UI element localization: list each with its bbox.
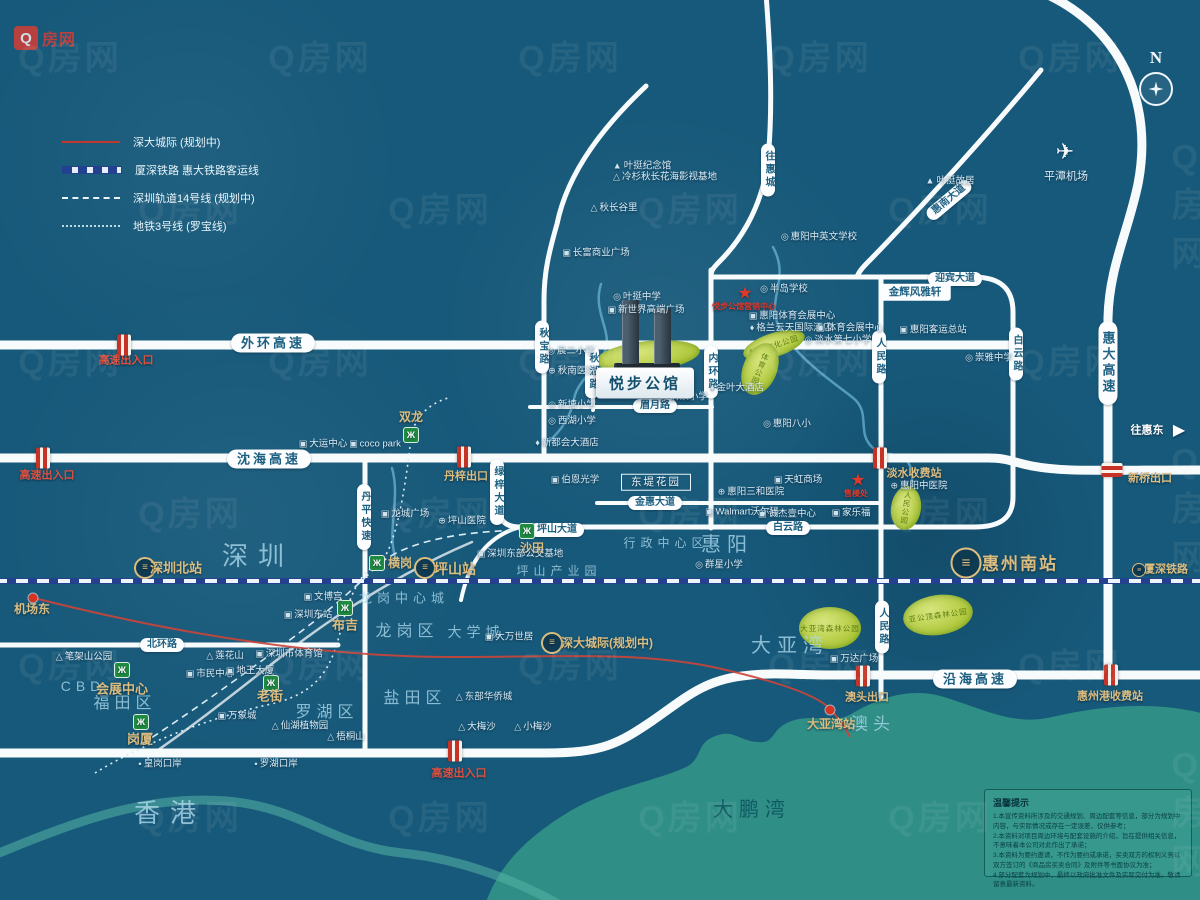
poi-qiuchanggu-text: 秋长谷里 (599, 203, 637, 213)
region-futian: 福田区 (93, 696, 156, 712)
building-icon (255, 650, 264, 659)
hospital-icon (890, 482, 898, 491)
region-admin-center: 行政中心区 (623, 537, 708, 549)
region-shenzhen-text: 深圳 (222, 543, 294, 569)
poi-yeting-residence-text: 叶挺故居 (936, 176, 974, 186)
shenda-intercity-label: 深大城际(规划中) (561, 637, 653, 649)
dot-icon (138, 761, 142, 767)
exit-xinqiao-text: 新桥出口 (1128, 474, 1172, 485)
legend-label: 深圳轨道14号线 (规划中) (133, 190, 255, 206)
legend-item-xiashen-railway: 厦深铁路 惠大铁路客运线 (62, 156, 259, 184)
building-icon (226, 667, 235, 676)
station-buji-text: 布吉 (332, 619, 358, 632)
dir-to-huidong: 往惠东 (1131, 426, 1164, 437)
poi-luohu-port-text: 罗湖口岸 (260, 759, 298, 769)
station-dayawan: 大亚湾站 (807, 718, 855, 730)
building-icon (349, 440, 358, 449)
badge-pingshan-ave-text: 坪山大道 (537, 525, 577, 535)
scenic-icon (56, 653, 63, 662)
school-icon (760, 285, 768, 294)
badge-huida-expwy: 惠大高速 (1099, 321, 1118, 405)
exit-marker-waihuan (117, 335, 131, 356)
badge-renmin-rd-n-text: 人民路 (874, 338, 884, 377)
poi-shenzhendong-station: 深圳东站 (284, 610, 333, 620)
region-luohu: 罗湖区 (295, 705, 358, 721)
poi-wenbogong-text: 文博宫 (314, 592, 343, 602)
region-pingshan-industrial: 坪山产业园 (516, 565, 601, 577)
badge-huinan-ave-text: 惠南大道 (930, 183, 967, 216)
poi-wanda-plaza-text: 万达广场 (840, 654, 878, 664)
region-aotou-text: 澳头 (851, 716, 895, 733)
region-dapengwan-text: 大鹏湾 (713, 800, 791, 820)
poi-tianhong-mall-text: 天虹商场 (784, 475, 822, 485)
region-longgang-text: 龙岗区 (375, 624, 438, 640)
station-gangxia: 岗厦 (127, 733, 153, 746)
poi-chongya-middle: 崇雅中学 (965, 353, 1013, 363)
expwy-access-2: 高速出入口 (20, 471, 75, 482)
poi-boen-optical-text: 伯恩光学 (561, 475, 599, 485)
poi-bandao-school-text: 半岛学校 (770, 284, 808, 294)
poi-huanggang-port: 皇岗口岸 (138, 759, 182, 769)
badge-pingshan-ave: 坪山大道 (530, 523, 584, 537)
poi-east-oct-text: 东部华侨城 (465, 692, 513, 702)
hospital-icon (548, 367, 556, 376)
expwy-access-3-text: 高速出入口 (432, 769, 487, 780)
poi-bijiashan-park: 笔架山公园 (56, 652, 112, 662)
sales-star-2-caption-text: 售楼处 (844, 490, 868, 498)
school-icon (695, 561, 703, 570)
poi-dawanshiju-text: 大万世居 (495, 632, 533, 642)
poi-sz-gymnasium: 深圳市体育馆 (255, 649, 323, 659)
property-label-box: 悦步公馆 (596, 368, 694, 399)
exit-marker-coastal (448, 741, 462, 762)
station-huizhounan-text: 惠州南站 (982, 556, 1058, 573)
poi-east-oct: 东部华侨城 (456, 692, 512, 702)
poi-huanggang-port-text: 皇岗口岸 (144, 759, 182, 769)
station-dayawan-text: 大亚湾站 (807, 718, 855, 730)
station-laojie-text: 老街 (257, 690, 283, 703)
station-gangxia-text: 岗厦 (127, 733, 153, 746)
compass: N (1136, 48, 1176, 106)
building-icon (607, 306, 616, 315)
poi-danshui-7-primary: 淡水第七小学 (805, 335, 872, 345)
poi-xiaomeisha-text: 小梅沙 (523, 722, 552, 732)
disclaimer-line: 2.本资料对项目周边环境与配套设施的介绍，旨在提供相关信息，不意味着本公司对此作… (993, 832, 1183, 852)
label-dongdi-garden-text: 东堤花园 (631, 477, 681, 488)
disclaimer-box: 温馨提示 1.本宣传资料所涉及的交通规划、周边配套等信息，部分为规划中内容，与实… (984, 789, 1192, 877)
poi-xihu-primary-text: 西湖小学 (558, 416, 596, 426)
badge-renmin-rd-s: 人民路 (875, 601, 889, 654)
poi-new-world-plaza: 新世界高端广场 (607, 305, 684, 315)
poi-dameisha-text: 大梅沙 (467, 722, 496, 732)
badge-yanhai-expwy: 沿海高速 (933, 670, 1017, 689)
badge-renmin-rd-s-text: 人民路 (877, 608, 887, 647)
poi-zhongyingwen-school-text: 惠阳中英文学校 (791, 232, 858, 242)
poi-yeting-residence: 叶挺故居 (926, 176, 975, 186)
huizhan-metro-icon (114, 662, 130, 678)
poi-mixc-mall-text: 万象城 (228, 711, 257, 721)
building-icon (774, 476, 783, 485)
badge-meiyue-rd-text: 眉月路 (640, 401, 670, 411)
poi-diwang-tower: 地王大厦 (226, 666, 275, 676)
map-legend: 深大城际 (规划中) 厦深铁路 惠大铁路客运线 深圳轨道14号线 (规划中) 地… (62, 128, 259, 240)
region-futian-text: 福田区 (93, 696, 156, 712)
poi-tianhong-mall: 天虹商场 (774, 475, 823, 485)
station-laojie: 老街 (257, 690, 283, 703)
badge-waihuan-expwy: 外环高速 (231, 334, 315, 353)
building-icon (381, 510, 390, 519)
legend-line-intercity (62, 141, 120, 143)
region-dapengwan: 大鹏湾 (713, 800, 791, 820)
poi-danshui-7-primary-text: 淡水第七小学 (814, 335, 871, 345)
scenic-icon (514, 723, 521, 732)
poi-jialefu: 家乐福 (831, 508, 870, 518)
building-icon (299, 440, 308, 449)
poi-dawanshiju: 大万世居 (485, 632, 534, 642)
badge-beihuan-rd: 北环路 (140, 638, 184, 652)
exit-marker-shenhai-w (36, 448, 50, 469)
poi-changfu-plaza-text: 长富商业广场 (573, 248, 630, 258)
poi-longcheng-plaza-text: 龙城广场 (391, 509, 429, 519)
legend-item-metro14: 深圳轨道14号线 (规划中) (62, 184, 259, 212)
station-henggang-text: 横岗 (388, 557, 412, 569)
east-arrow-icon (1173, 423, 1185, 439)
station-pingshan-text: 坪山站 (434, 562, 476, 576)
scenic-icon (613, 173, 620, 182)
poi-huiyang-bus-terminal-text: 惠阳客运总站 (910, 325, 967, 335)
poi-lianhuashan-text: 莲花山 (215, 651, 244, 661)
station-jichangdong: 机场东 (14, 603, 50, 615)
dayawan-dot (826, 706, 835, 715)
poi-pingshan-hospital-text: 坪山医院 (448, 516, 486, 526)
scenic-icon (456, 693, 463, 702)
xiashen-railway-label: 厦深铁路 (1144, 565, 1188, 576)
poi-pingshan-hospital: 坪山医院 (438, 516, 486, 526)
poi-changfu-plaza: 长富商业广场 (562, 248, 630, 258)
label-jinhui-fengyaxuan: 金辉风雅轩 (880, 284, 951, 301)
building-icon (899, 326, 908, 335)
toll-danshui: 淡水收费站 (887, 469, 942, 480)
dot-icon (254, 761, 258, 767)
scenic-icon (206, 652, 213, 661)
poi-tiyu-expo-center: 体育会展中心 (816, 323, 884, 333)
toll-marker-huizhougang (1104, 665, 1118, 686)
poi-huiyang-8-primary: 惠阳八小 (763, 419, 811, 429)
region-longgang-center-text: 龙岗中心城 (359, 592, 449, 605)
legend-label: 厦深铁路 惠大铁路客运线 (135, 162, 259, 178)
xiashen-railway-label-text: 厦深铁路 (1144, 565, 1188, 576)
pingtan-airport-icon (1056, 141, 1074, 163)
hotel-icon (535, 439, 540, 448)
poi-qiuchanggu: 秋长谷里 (591, 203, 638, 213)
poi-chener-primary-text: 晨二小学 (557, 346, 595, 356)
henggang-metro-icon (369, 555, 385, 571)
region-dayawan-text: 大亚湾 (751, 636, 829, 656)
memorial-icon (926, 177, 935, 186)
badge-renmin-rd-n: 人民路 (872, 331, 886, 384)
badge-danping-expwy: 丹平快速 (357, 484, 371, 550)
region-aotou: 澳头 (851, 716, 895, 733)
disclaimer-line: 4.部分配套为规划中，最终以政府批准文件及实际交付为准。敬请留意最新资料。 (993, 871, 1183, 891)
poi-longcheng-plaza: 龙城广场 (381, 509, 430, 519)
badge-yingbin-ave-text: 迎宾大道 (935, 274, 975, 284)
expwy-access-3: 高速出入口 (432, 769, 487, 780)
scenic-icon (272, 722, 279, 731)
badge-lvzi-ave: 绿梓大道 (490, 459, 504, 525)
hospital-icon (718, 488, 726, 497)
poi-xindouhui-hotel: 新都会大酒店 (535, 438, 599, 448)
poi-luohu-port: 罗湖口岸 (254, 759, 298, 769)
site-logo-watermark: Q 房网 (14, 26, 76, 50)
label-jinhui-fengyaxuan-text: 金辉风雅轩 (889, 287, 942, 298)
station-pingshan: 坪山站 (434, 562, 476, 576)
poi-east-bus-base-text: 深圳东部公交基地 (487, 549, 563, 559)
badge-danping-expwy-text: 丹平快速 (359, 491, 369, 543)
exit-aotou: 澳头出口 (845, 693, 889, 704)
location-map: 秋长文化公园体育公园人民公园大亚湾森林公园亚公顶森林公园 深圳香港惠阳大亚湾澳头… (0, 0, 1200, 900)
region-yantian: 盐田区 (383, 691, 446, 707)
poi-film-base-text: 冷杉秋长花海影视基地 (622, 172, 717, 182)
memorial-icon (613, 162, 622, 171)
legend-line-metro14 (62, 197, 120, 199)
school-icon (965, 354, 973, 363)
poi-wutongshan: 梧桐山 (327, 732, 364, 742)
poi-tiyu-expo-center-text: 体育会展中心 (827, 323, 884, 333)
shatian-metro-icon (519, 523, 535, 539)
poi-chongya-middle-text: 崇雅中学 (975, 353, 1013, 363)
building-icon (551, 476, 560, 485)
badge-yanhai-expwy-text: 沿海高速 (943, 673, 1007, 686)
building-icon (758, 510, 767, 519)
shuanglong-metro-icon (403, 427, 419, 443)
sales-star-2 (850, 472, 865, 489)
scenic-icon (327, 733, 334, 742)
pingshan-train-icon (414, 557, 436, 579)
legend-item-metro3: 地铁3号线 (罗宝线) (62, 212, 259, 240)
poi-xianhu-garden: 仙湖植物园 (272, 721, 328, 731)
exit-marker-xinqiao (1102, 463, 1123, 477)
huizhounan-train-icon (951, 548, 982, 579)
poi-qiunan-hospital-text: 秋南医院 (558, 366, 596, 376)
region-longgang: 龙岗区 (375, 624, 438, 640)
sales-star-2-caption: 售楼处 (844, 490, 868, 498)
sales-star-1 (737, 285, 752, 302)
expwy-access-1-text: 高速出入口 (99, 356, 154, 367)
building-icon (284, 611, 293, 620)
badge-jinhui-ave: 金惠大道 (628, 496, 682, 510)
poi-sanhe-hospital-text: 惠阳三和医院 (727, 487, 784, 497)
site-logo-text: 房网 (42, 26, 76, 50)
toll-marker-danshui (873, 448, 887, 469)
poi-jinye-hotel-text: 金叶大酒店 (717, 383, 765, 393)
site-logo-q-icon: Q (14, 26, 38, 50)
legend-label: 地铁3号线 (罗宝线) (133, 218, 227, 234)
toll-huizhougang: 惠州港收费站 (1077, 692, 1143, 703)
building-icon (217, 712, 226, 721)
badge-qiubao-rd-text: 秋宝路 (537, 328, 547, 367)
badge-beihuan-rd-text: 北环路 (147, 640, 177, 650)
exit-marker-aotou (856, 666, 870, 687)
poi-huiyang-expo-center-text: 惠阳体育会展中心 (759, 311, 835, 321)
region-hongkong-text: 香港 (134, 800, 206, 826)
building-icon (477, 550, 486, 559)
exit-aotou-text: 澳头出口 (845, 693, 889, 704)
compass-dial-icon (1139, 72, 1173, 106)
hotel-icon (710, 384, 715, 393)
poi-film-base: 冷杉秋长花海影视基地 (613, 172, 717, 182)
badge-baiyun-rd-h: 白云路 (766, 521, 810, 535)
poi-xihu-primary: 西湖小学 (548, 416, 596, 426)
poi-zhongyingwen-school: 惠阳中英文学校 (781, 232, 857, 242)
school-icon (548, 417, 556, 426)
school-icon (613, 293, 621, 302)
dir-to-huicheng-text: 往惠城 (763, 151, 773, 190)
badge-shenhai-expwy-text: 沈海高速 (237, 453, 301, 466)
poi-wenbogong: 文博宫 (303, 592, 342, 602)
school-icon (763, 420, 771, 429)
expwy-access-1: 高速出入口 (99, 356, 154, 367)
school-icon (548, 401, 556, 410)
poi-pingtan-airport: 平潭机场 (1044, 172, 1088, 183)
expwy-access-2-text: 高速出入口 (20, 471, 75, 482)
poi-dameisha: 大梅沙 (458, 722, 495, 732)
poi-shenzhendong-station-text: 深圳东站 (294, 610, 332, 620)
legend-item-shenda-intercity: 深大城际 (规划中) (62, 128, 259, 156)
station-henggang: 横岗 (388, 557, 412, 569)
exit-xinqiao: 新桥出口 (1128, 474, 1172, 485)
region-admin-center-text: 行政中心区 (623, 537, 708, 549)
poi-dayun-center-text: 大运中心 (309, 439, 347, 449)
exit-marker-danzi (457, 447, 471, 468)
poi-xindouhui-hotel-text: 新都会大酒店 (542, 438, 599, 448)
poi-chengjie-center: 诚杰壹中心 (758, 509, 816, 519)
poi-xintang-primary-text: 新塘小学 (558, 400, 596, 410)
region-longgang-center: 龙岗中心城 (359, 592, 449, 605)
compass-star-icon (1149, 82, 1164, 97)
poi-cocopark-text: coco park (360, 439, 401, 449)
dir-to-huicheng: 往惠城 (761, 144, 775, 197)
poi-jinye-hotel: 金叶大酒店 (710, 383, 764, 393)
poi-xiaomeisha: 小梅沙 (514, 722, 551, 732)
legend-line-railway (62, 166, 122, 174)
toll-danshui-text: 淡水收费站 (887, 469, 942, 480)
region-yantian-text: 盐田区 (383, 691, 446, 707)
region-hongkong: 香港 (134, 800, 206, 826)
shenda-train-icon (541, 632, 563, 654)
poi-huiyang-tcm-hospital: 惠阳中医院 (890, 481, 947, 491)
poi-diwang-tower-text: 地王大厦 (236, 666, 274, 676)
badge-waihuan-expwy-text: 外环高速 (241, 337, 305, 350)
poi-bandao-school: 半岛学校 (760, 284, 808, 294)
poi-yeting-middle-school: 叶挺中学 (613, 292, 661, 302)
badge-huida-expwy-text: 惠大高速 (1102, 331, 1115, 395)
badge-jinhui-ave-text: 金惠大道 (635, 498, 675, 508)
station-shenzhenbei: 深圳北站 (150, 562, 202, 575)
poi-huiyang-tcm-hospital-text: 惠阳中医院 (900, 481, 948, 491)
poi-jialefu-text: 家乐福 (842, 508, 871, 518)
building-icon (303, 593, 312, 602)
poi-pingtan-airport-text: 平潭机场 (1044, 172, 1088, 183)
poi-qunxing-primary-text: 群星小学 (705, 560, 743, 570)
hotel-icon (750, 324, 755, 333)
poi-huiyang-8-primary-text: 惠阳八小 (773, 419, 811, 429)
region-dayawan: 大亚湾 (751, 636, 829, 656)
region-shenzhen: 深圳 (222, 543, 294, 569)
poi-xintang-primary: 新塘小学 (548, 400, 596, 410)
region-huiyang-text: 惠阳 (701, 535, 753, 555)
dir-to-huidong-text: 往惠东 (1131, 426, 1164, 437)
disclaimer-line: 3.本资料为要约邀请，不作为要约或承诺，买卖双方的权利义务以双方签订的《商品房买… (993, 851, 1183, 871)
building-icon (816, 324, 825, 333)
poi-chener-primary: 晨二小学 (547, 346, 595, 356)
station-shuanglong: 双龙 (399, 411, 423, 423)
poi-sz-gymnasium-text: 深圳市体育馆 (266, 649, 323, 659)
station-huizhan-center: 会展中心 (96, 683, 148, 696)
disclaimer-title: 温馨提示 (993, 796, 1183, 809)
poi-boen-optical: 伯恩光学 (551, 475, 600, 485)
poi-dayun-center: 大运中心 (299, 439, 348, 449)
region-pingshan-industrial-text: 坪山产业园 (516, 565, 601, 577)
school-icon (805, 336, 813, 345)
poi-cocopark: coco park (349, 439, 401, 449)
school-icon (547, 347, 555, 356)
poi-new-world-plaza-text: 新世界高端广场 (618, 305, 685, 315)
building-icon (705, 508, 714, 517)
poi-huiyang-expo-center: 惠阳体育会展中心 (749, 311, 836, 321)
poi-chengjie-center-text: 诚杰壹中心 (769, 509, 817, 519)
poi-yeting-middle-school-text: 叶挺中学 (623, 292, 661, 302)
compass-north-label: N (1136, 48, 1176, 68)
poi-qiunan-hospital: 秋南医院 (548, 366, 596, 376)
poi-mixc-mall: 万象城 (217, 711, 256, 721)
label-dongdi-garden: 东堤花园 (621, 474, 691, 491)
station-shenzhenbei-text: 深圳北站 (150, 562, 202, 575)
poi-xianhu-garden-text: 仙湖植物园 (281, 721, 329, 731)
poi-huiyang-bus-terminal: 惠阳客运总站 (899, 325, 967, 335)
poi-yeting-memorial-text: 叶挺纪念馆 (624, 161, 672, 171)
gangxia-metro-icon (133, 714, 149, 730)
buji-metro-icon (337, 600, 353, 616)
poi-yeting-memorial: 叶挺纪念馆 (613, 161, 671, 171)
station-jichangdong-text: 机场东 (14, 603, 50, 615)
station-huizhan-center-text: 会展中心 (96, 683, 148, 696)
school-icon (781, 233, 789, 242)
poi-lianhuashan: 莲花山 (206, 651, 243, 661)
exit-danzi: 丹梓出口 (444, 472, 488, 483)
exit-danzi-text: 丹梓出口 (444, 472, 488, 483)
scenic-icon (591, 204, 598, 213)
building-icon (485, 633, 494, 642)
station-huizhounan: 惠州南站 (982, 556, 1058, 573)
station-buji: 布吉 (332, 619, 358, 632)
hospital-icon (438, 517, 446, 526)
region-huiyang: 惠阳 (701, 535, 753, 555)
badge-lvzi-ave-text: 绿梓大道 (492, 466, 502, 518)
building-icon (831, 509, 840, 518)
region-luohu-text: 罗湖区 (295, 705, 358, 721)
shenda-intercity-label-text: 深大城际(规划中) (561, 637, 653, 649)
station-shuanglong-text: 双龙 (399, 411, 423, 423)
poi-wutongshan-text: 梧桐山 (336, 732, 365, 742)
poi-east-bus-base: 深圳东部公交基地 (477, 549, 564, 559)
building-icon (186, 670, 195, 679)
building-icon (562, 249, 571, 258)
disclaimer-line: 1.本宣传资料所涉及的交通规划、周边配套等信息，部分为规划中内容，与实际情况或存… (993, 812, 1183, 832)
legend-label: 深大城际 (规划中) (133, 134, 220, 150)
legend-line-metro3 (62, 225, 120, 227)
scenic-icon (458, 723, 465, 732)
poi-wanda-plaza: 万达广场 (830, 654, 879, 664)
